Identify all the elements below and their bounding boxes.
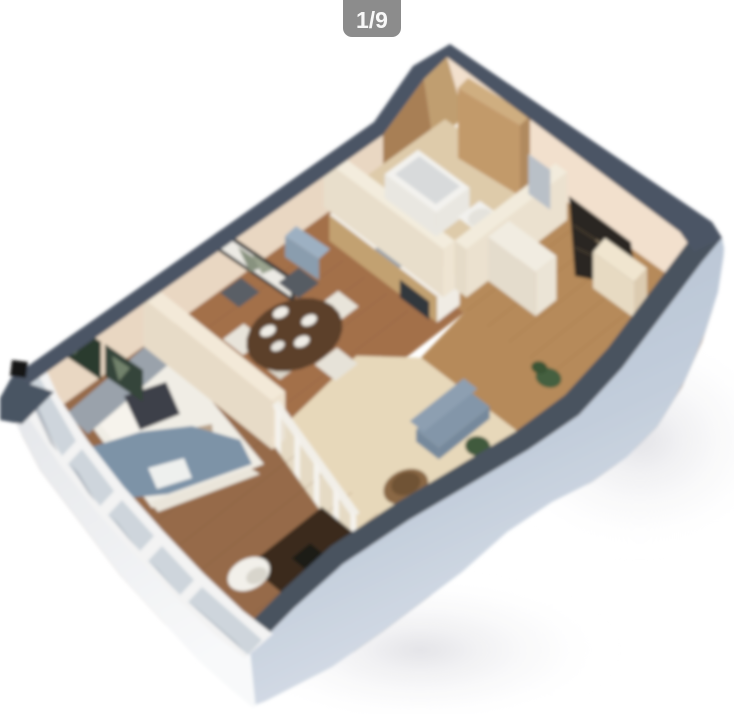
svg-text:1/9: 1/9 (356, 7, 388, 33)
